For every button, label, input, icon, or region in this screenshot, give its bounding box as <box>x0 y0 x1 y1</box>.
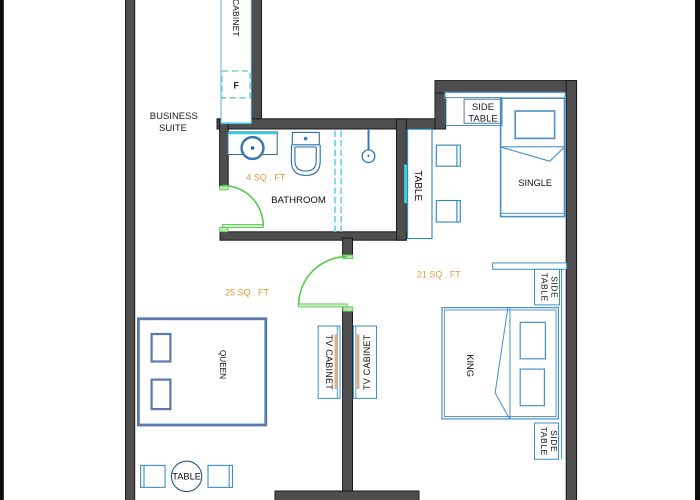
svg-text:TV CABINET: TV CABINET <box>324 334 334 390</box>
svg-text:SIDE: SIDE <box>549 430 559 452</box>
svg-text:25 SQ . FT: 25 SQ . FT <box>225 287 270 297</box>
svg-text:F: F <box>234 81 240 91</box>
svg-text:BUSINESS: BUSINESS <box>150 111 198 122</box>
svg-text:4 SQ . FT: 4 SQ . FT <box>246 172 286 182</box>
svg-text:BATHROOM: BATHROOM <box>271 195 326 206</box>
svg-text:TABLE: TABLE <box>539 427 549 456</box>
svg-text:KING: KING <box>465 354 475 377</box>
svg-text:SINGLE: SINGLE <box>518 178 552 188</box>
svg-text:CABINET: CABINET <box>231 0 241 37</box>
svg-text:SIDE: SIDE <box>550 276 560 298</box>
svg-text:SUITE: SUITE <box>159 123 187 134</box>
svg-text:TV CABINET: TV CABINET <box>362 334 372 390</box>
svg-text:21 SQ . FT: 21 SQ . FT <box>417 270 462 280</box>
svg-text:TABLE: TABLE <box>412 170 423 201</box>
svg-text:TABLE: TABLE <box>172 472 201 482</box>
svg-text:TABLE: TABLE <box>468 114 497 125</box>
svg-text:SIDE: SIDE <box>472 102 494 113</box>
svg-text:QUEEN: QUEEN <box>218 350 227 379</box>
svg-text:TABLE: TABLE <box>540 273 550 302</box>
